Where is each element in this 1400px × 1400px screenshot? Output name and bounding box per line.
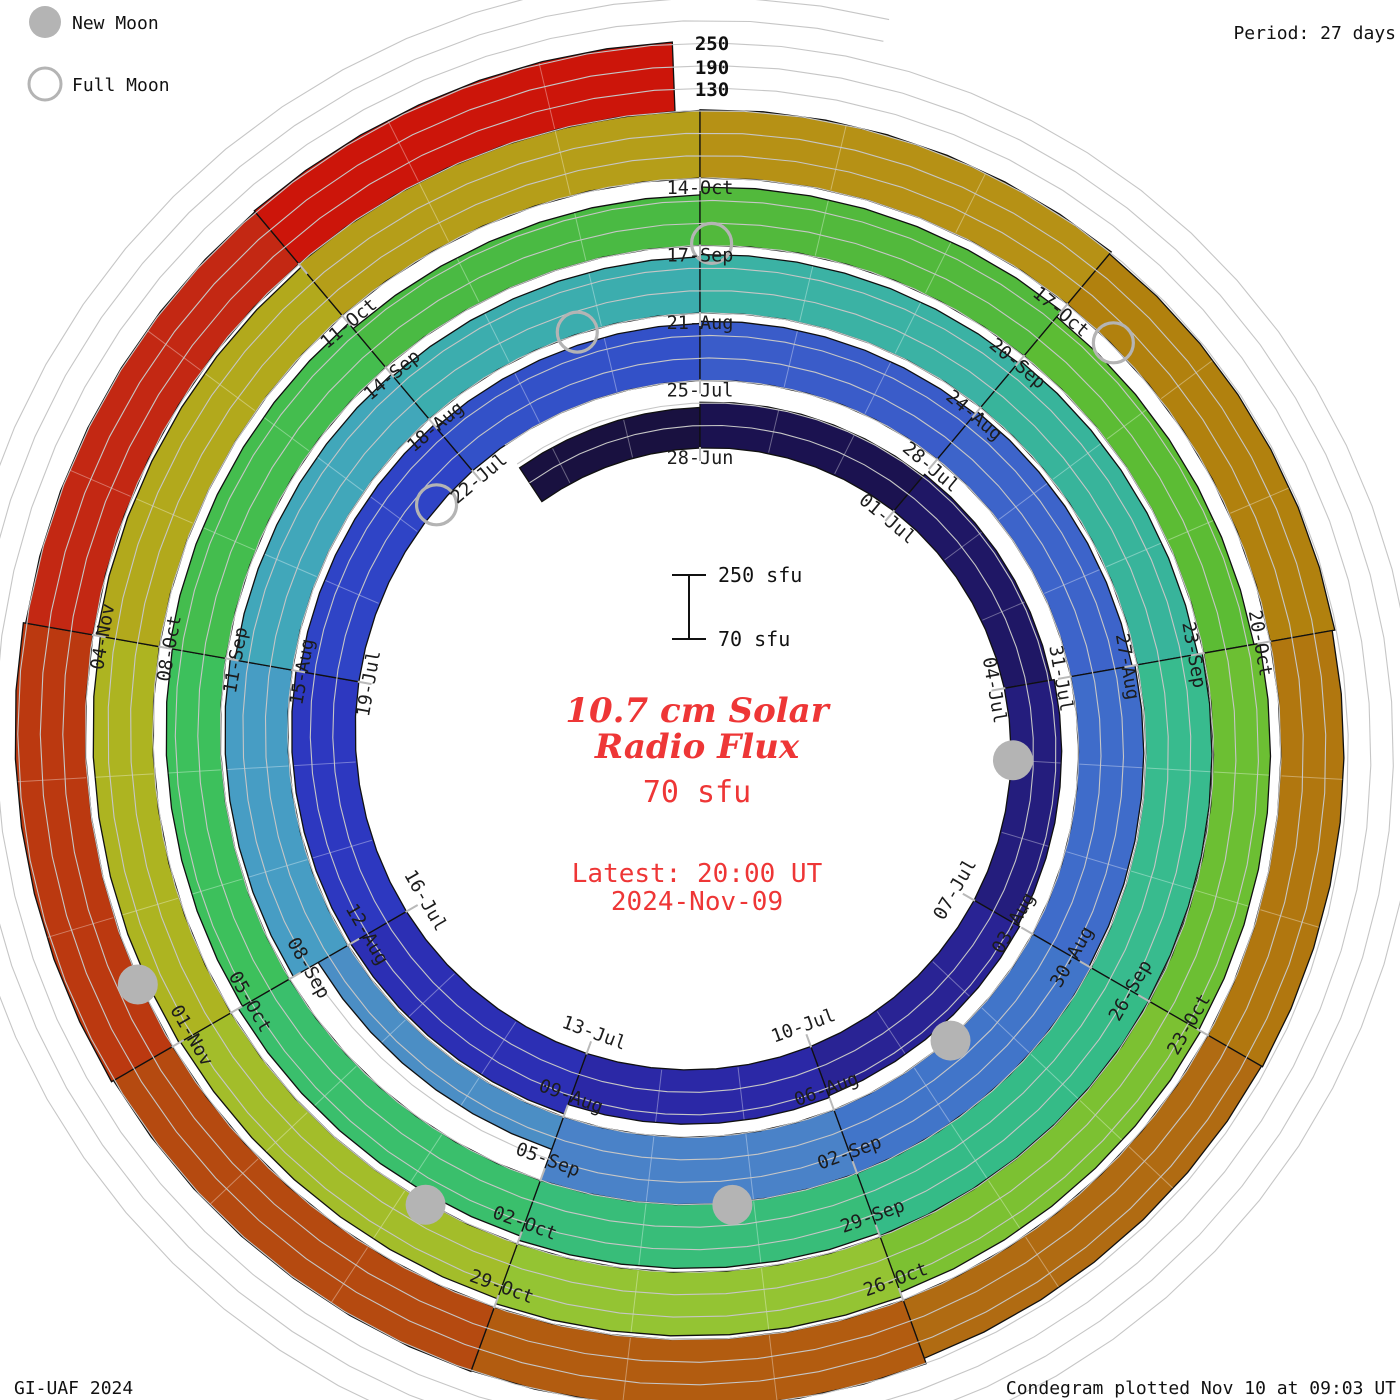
new-moon-marker-02-Oct	[406, 1185, 446, 1225]
chart-title-line2: Radio Flux	[594, 727, 800, 767]
new-moon-icon	[29, 6, 61, 38]
date-label-14-Oct: 14-Oct	[667, 178, 734, 199]
new-moon-marker-03-Sep	[712, 1185, 752, 1225]
outer-flux-scale: 250 190 130	[695, 33, 729, 101]
boundary-tick	[1021, 928, 1033, 935]
plotted-timestamp: Condegram plotted Nov 10 at 09:03 UT	[1006, 1378, 1396, 1399]
full-moon-label: Full Moon	[72, 75, 170, 96]
latest-time: Latest: 20:00 UT	[572, 859, 823, 889]
flux-scale-bar	[672, 575, 706, 639]
date-label-25-Jul: 25-Jul	[667, 381, 734, 402]
chart-title-line1: 10.7 cm Solar	[565, 691, 830, 731]
flux-segment-04-Jul	[974, 680, 1062, 926]
outer-scale-250: 250	[695, 33, 729, 55]
scale-top-label: 250 sfu	[718, 563, 802, 587]
boundary-tick	[806, 1034, 811, 1047]
date-label-21-Aug: 21-Aug	[667, 313, 734, 334]
new-moon-marker-01-Nov	[118, 964, 158, 1004]
outer-scale-190: 190	[695, 57, 729, 79]
outer-scale-130: 130	[695, 79, 729, 101]
scale-bottom-label: 70 sfu	[718, 627, 790, 651]
boundary-tick	[406, 905, 418, 912]
new-moon-marker-05-Jul	[993, 740, 1033, 780]
center-annotation: 10.7 cm Solar Radio Flux 70 sfu Latest: …	[565, 691, 830, 917]
boundary-tick	[586, 1041, 591, 1054]
new-moon-marker-04-Aug	[931, 1021, 971, 1061]
condegram-canvas: 28-Jun01-Jul04-Jul07-Jul10-Jul13-Jul16-J…	[0, 0, 1400, 1400]
full-moon-icon	[29, 68, 61, 100]
latest-date: 2024-Nov-09	[611, 887, 783, 917]
condegram-page: 28-Jun01-Jul04-Jul07-Jul10-Jul13-Jul16-J…	[0, 0, 1400, 1400]
credit-label: GI-UAF 2024	[14, 1378, 133, 1399]
moon-legend: New Moon Full Moon	[29, 6, 170, 100]
flux-segment-10-Jul	[568, 1047, 829, 1125]
boundary-tick	[829, 1098, 834, 1111]
new-moon-label: New Moon	[72, 13, 159, 34]
period-label: Period: 27 days	[1233, 23, 1396, 44]
date-label-17-Sep: 17-Sep	[667, 246, 734, 267]
boundary-tick	[963, 894, 975, 901]
date-label-28-Jun: 28-Jun	[667, 448, 734, 469]
current-flux-value: 70 sfu	[643, 775, 751, 810]
